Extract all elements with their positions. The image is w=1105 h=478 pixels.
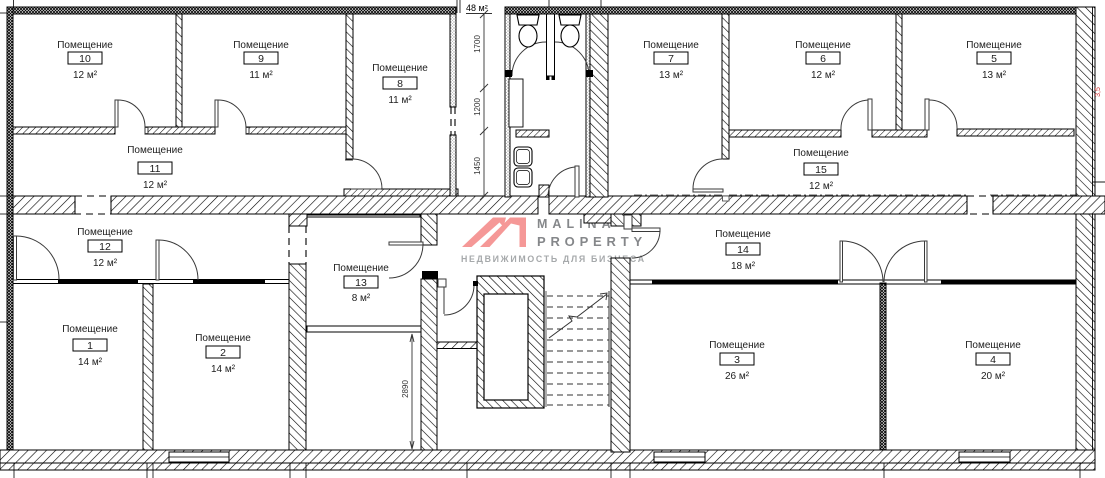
svg-text:13: 13 <box>355 277 367 289</box>
svg-text:4: 4 <box>990 354 996 366</box>
svg-text:Помещение: Помещение <box>715 229 771 240</box>
svg-text:12: 12 <box>99 241 111 253</box>
svg-text:Помещение: Помещение <box>793 148 849 159</box>
svg-text:13 м²: 13 м² <box>659 70 684 81</box>
svg-text:5: 5 <box>991 53 997 65</box>
svg-text:Помещение: Помещение <box>966 40 1022 51</box>
svg-text:Помещение: Помещение <box>195 333 251 344</box>
svg-text:12 м²: 12 м² <box>809 181 834 192</box>
svg-text:15: 15 <box>815 164 827 176</box>
svg-text:Помещение: Помещение <box>643 40 699 51</box>
svg-text:11: 11 <box>150 163 161 175</box>
svg-text:7: 7 <box>668 53 674 65</box>
svg-text:Помещение: Помещение <box>709 340 765 351</box>
svg-text:Помещение: Помещение <box>127 145 183 156</box>
svg-text:48 м²: 48 м² <box>466 3 488 13</box>
svg-text:Помещение: Помещение <box>77 227 133 238</box>
svg-text:11 м²: 11 м² <box>388 95 412 106</box>
svg-text:1450: 1450 <box>473 157 482 175</box>
svg-text:3: 3 <box>734 354 740 366</box>
svg-text:8 м²: 8 м² <box>352 293 371 304</box>
svg-text:8: 8 <box>397 78 403 90</box>
svg-text:14 м²: 14 м² <box>78 357 103 368</box>
svg-text:12 м²: 12 м² <box>93 258 118 269</box>
svg-text:20 м²: 20 м² <box>981 371 1006 382</box>
svg-text:14 м²: 14 м² <box>211 364 236 375</box>
svg-text:Помещение: Помещение <box>333 263 389 274</box>
svg-text:Помещение: Помещение <box>57 40 113 51</box>
svg-text:13 м²: 13 м² <box>982 70 1007 81</box>
svg-text:1: 1 <box>87 340 93 352</box>
svg-text:PROPERTY: PROPERTY <box>537 234 647 249</box>
svg-text:6: 6 <box>820 53 826 65</box>
svg-text:18 м²: 18 м² <box>731 261 756 272</box>
svg-text:Помещение: Помещение <box>233 40 289 51</box>
svg-text:10: 10 <box>79 53 91 65</box>
svg-text:2: 2 <box>220 347 226 359</box>
svg-text:14: 14 <box>737 244 749 256</box>
svg-text:Помещение: Помещение <box>62 324 118 335</box>
svg-text:3,5: 3,5 <box>1095 87 1102 97</box>
svg-text:Помещение: Помещение <box>965 340 1021 351</box>
svg-text:12 м²: 12 м² <box>811 70 836 81</box>
svg-text:1200: 1200 <box>473 98 482 116</box>
svg-text:11 м²: 11 м² <box>249 70 273 81</box>
svg-text:1700: 1700 <box>473 35 482 53</box>
svg-text:12 м²: 12 м² <box>73 70 98 81</box>
svg-text:Помещение: Помещение <box>372 63 428 74</box>
svg-text:2890: 2890 <box>401 380 410 398</box>
svg-text:Помещение: Помещение <box>795 40 851 51</box>
svg-text:12 м²: 12 м² <box>143 180 168 191</box>
svg-text:9: 9 <box>258 53 264 65</box>
svg-text:26 м²: 26 м² <box>725 371 750 382</box>
